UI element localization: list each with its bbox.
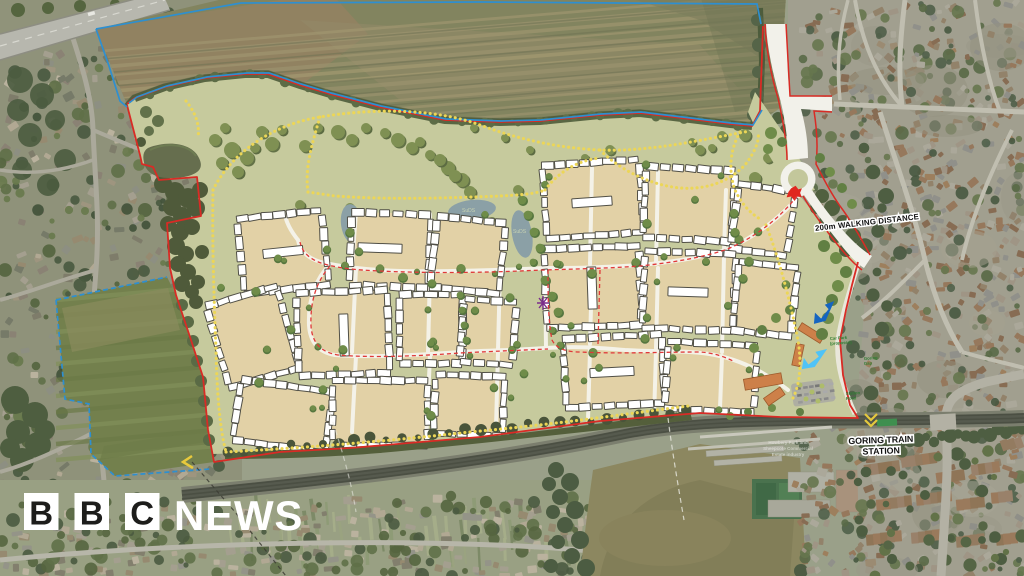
svg-text:SuDS: SuDS <box>462 208 476 214</box>
svg-text:Sheepcote Commercial: Sheepcote Commercial <box>763 446 813 451</box>
svg-text:STATION: STATION <box>862 445 900 456</box>
svg-text:C: C <box>130 495 154 532</box>
svg-text:Road: Road <box>846 395 857 401</box>
svg-text:B: B <box>29 495 53 532</box>
svg-text:Gap: Gap <box>864 360 873 366</box>
svg-text:NEWS: NEWS <box>174 492 303 539</box>
svg-text:B: B <box>80 495 104 532</box>
svg-text:SuDS: SuDS <box>513 229 527 235</box>
svg-text:Howbery Park and: Howbery Park and <box>768 440 808 445</box>
svg-text:Estate industry: Estate industry <box>772 452 805 457</box>
